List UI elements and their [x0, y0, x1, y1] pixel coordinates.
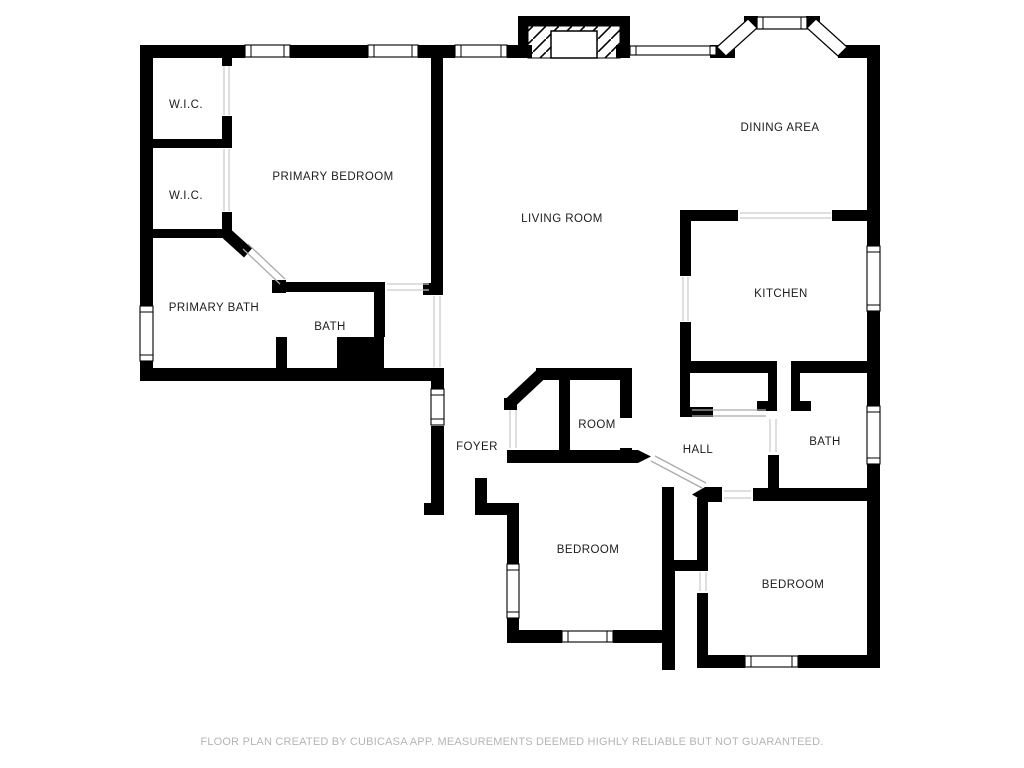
room-label-dining-area: DINING AREA — [740, 122, 819, 134]
disclaimer-text: FLOOR PLAN CREATED BY CUBICASA APP. MEAS… — [0, 736, 1024, 748]
room-label-room: ROOM — [578, 419, 616, 431]
room-label-living-room: LIVING ROOM — [521, 213, 603, 225]
room-label-primary-bedroom: PRIMARY BEDROOM — [272, 171, 393, 183]
room-label-bath-right: BATH — [809, 436, 841, 448]
room-label-kitchen: KITCHEN — [754, 288, 808, 300]
room-labels: W.I.C.W.I.C.PRIMARY BEDROOMPRIMARY BATHB… — [0, 0, 1024, 768]
floor-plan-page: W.I.C.W.I.C.PRIMARY BEDROOMPRIMARY BATHB… — [0, 0, 1024, 768]
room-label-primary-bath: PRIMARY BATH — [169, 302, 259, 314]
room-label-bedroom-right: BEDROOM — [762, 579, 825, 591]
room-label-bath-left: BATH — [314, 321, 346, 333]
room-label-hall: HALL — [683, 444, 714, 456]
room-label-wic-upper: W.I.C. — [169, 99, 203, 111]
room-label-bedroom-left: BEDROOM — [557, 544, 620, 556]
room-label-foyer: FOYER — [456, 441, 498, 453]
room-label-wic-lower: W.I.C. — [169, 190, 203, 202]
